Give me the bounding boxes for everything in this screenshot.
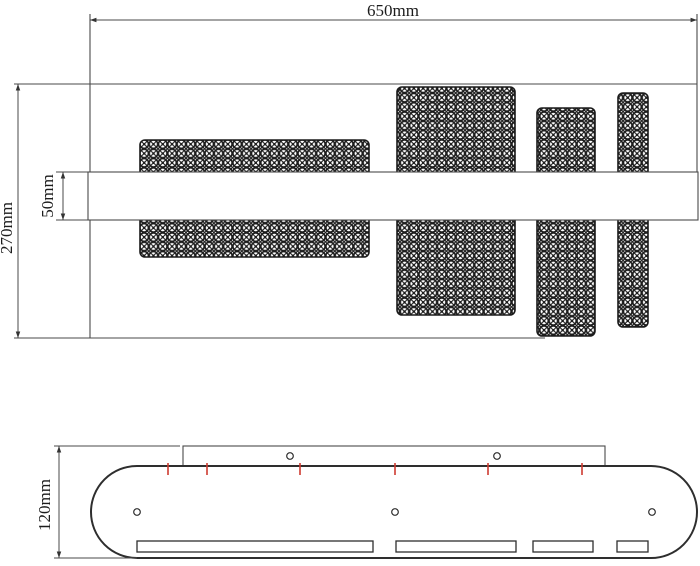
- brush-block: [537, 108, 595, 336]
- dim-label-270: 270mm: [0, 202, 16, 254]
- drawing-svg: 650mm 270mm 50mm 120mm: [0, 0, 700, 566]
- mount-slot: [396, 541, 516, 552]
- plate-hole: [494, 453, 501, 460]
- dim-label-650: 650mm: [367, 1, 419, 20]
- mount-slot: [617, 541, 648, 552]
- top-view: 650mm 270mm 50mm: [0, 1, 698, 338]
- mounting-plate: [183, 446, 605, 466]
- body-hole: [649, 509, 656, 516]
- side-view: 120mm: [35, 446, 697, 558]
- body-hole: [134, 509, 141, 516]
- body-hole: [392, 509, 399, 516]
- mount-slot: [533, 541, 593, 552]
- shaft-bar: [88, 172, 698, 220]
- mount-slot: [137, 541, 373, 552]
- technical-drawing-page: 650mm 270mm 50mm 120mm: [0, 0, 700, 566]
- plate-hole: [287, 453, 294, 460]
- dim-label-120: 120mm: [35, 479, 54, 531]
- dim-label-50: 50mm: [38, 174, 57, 217]
